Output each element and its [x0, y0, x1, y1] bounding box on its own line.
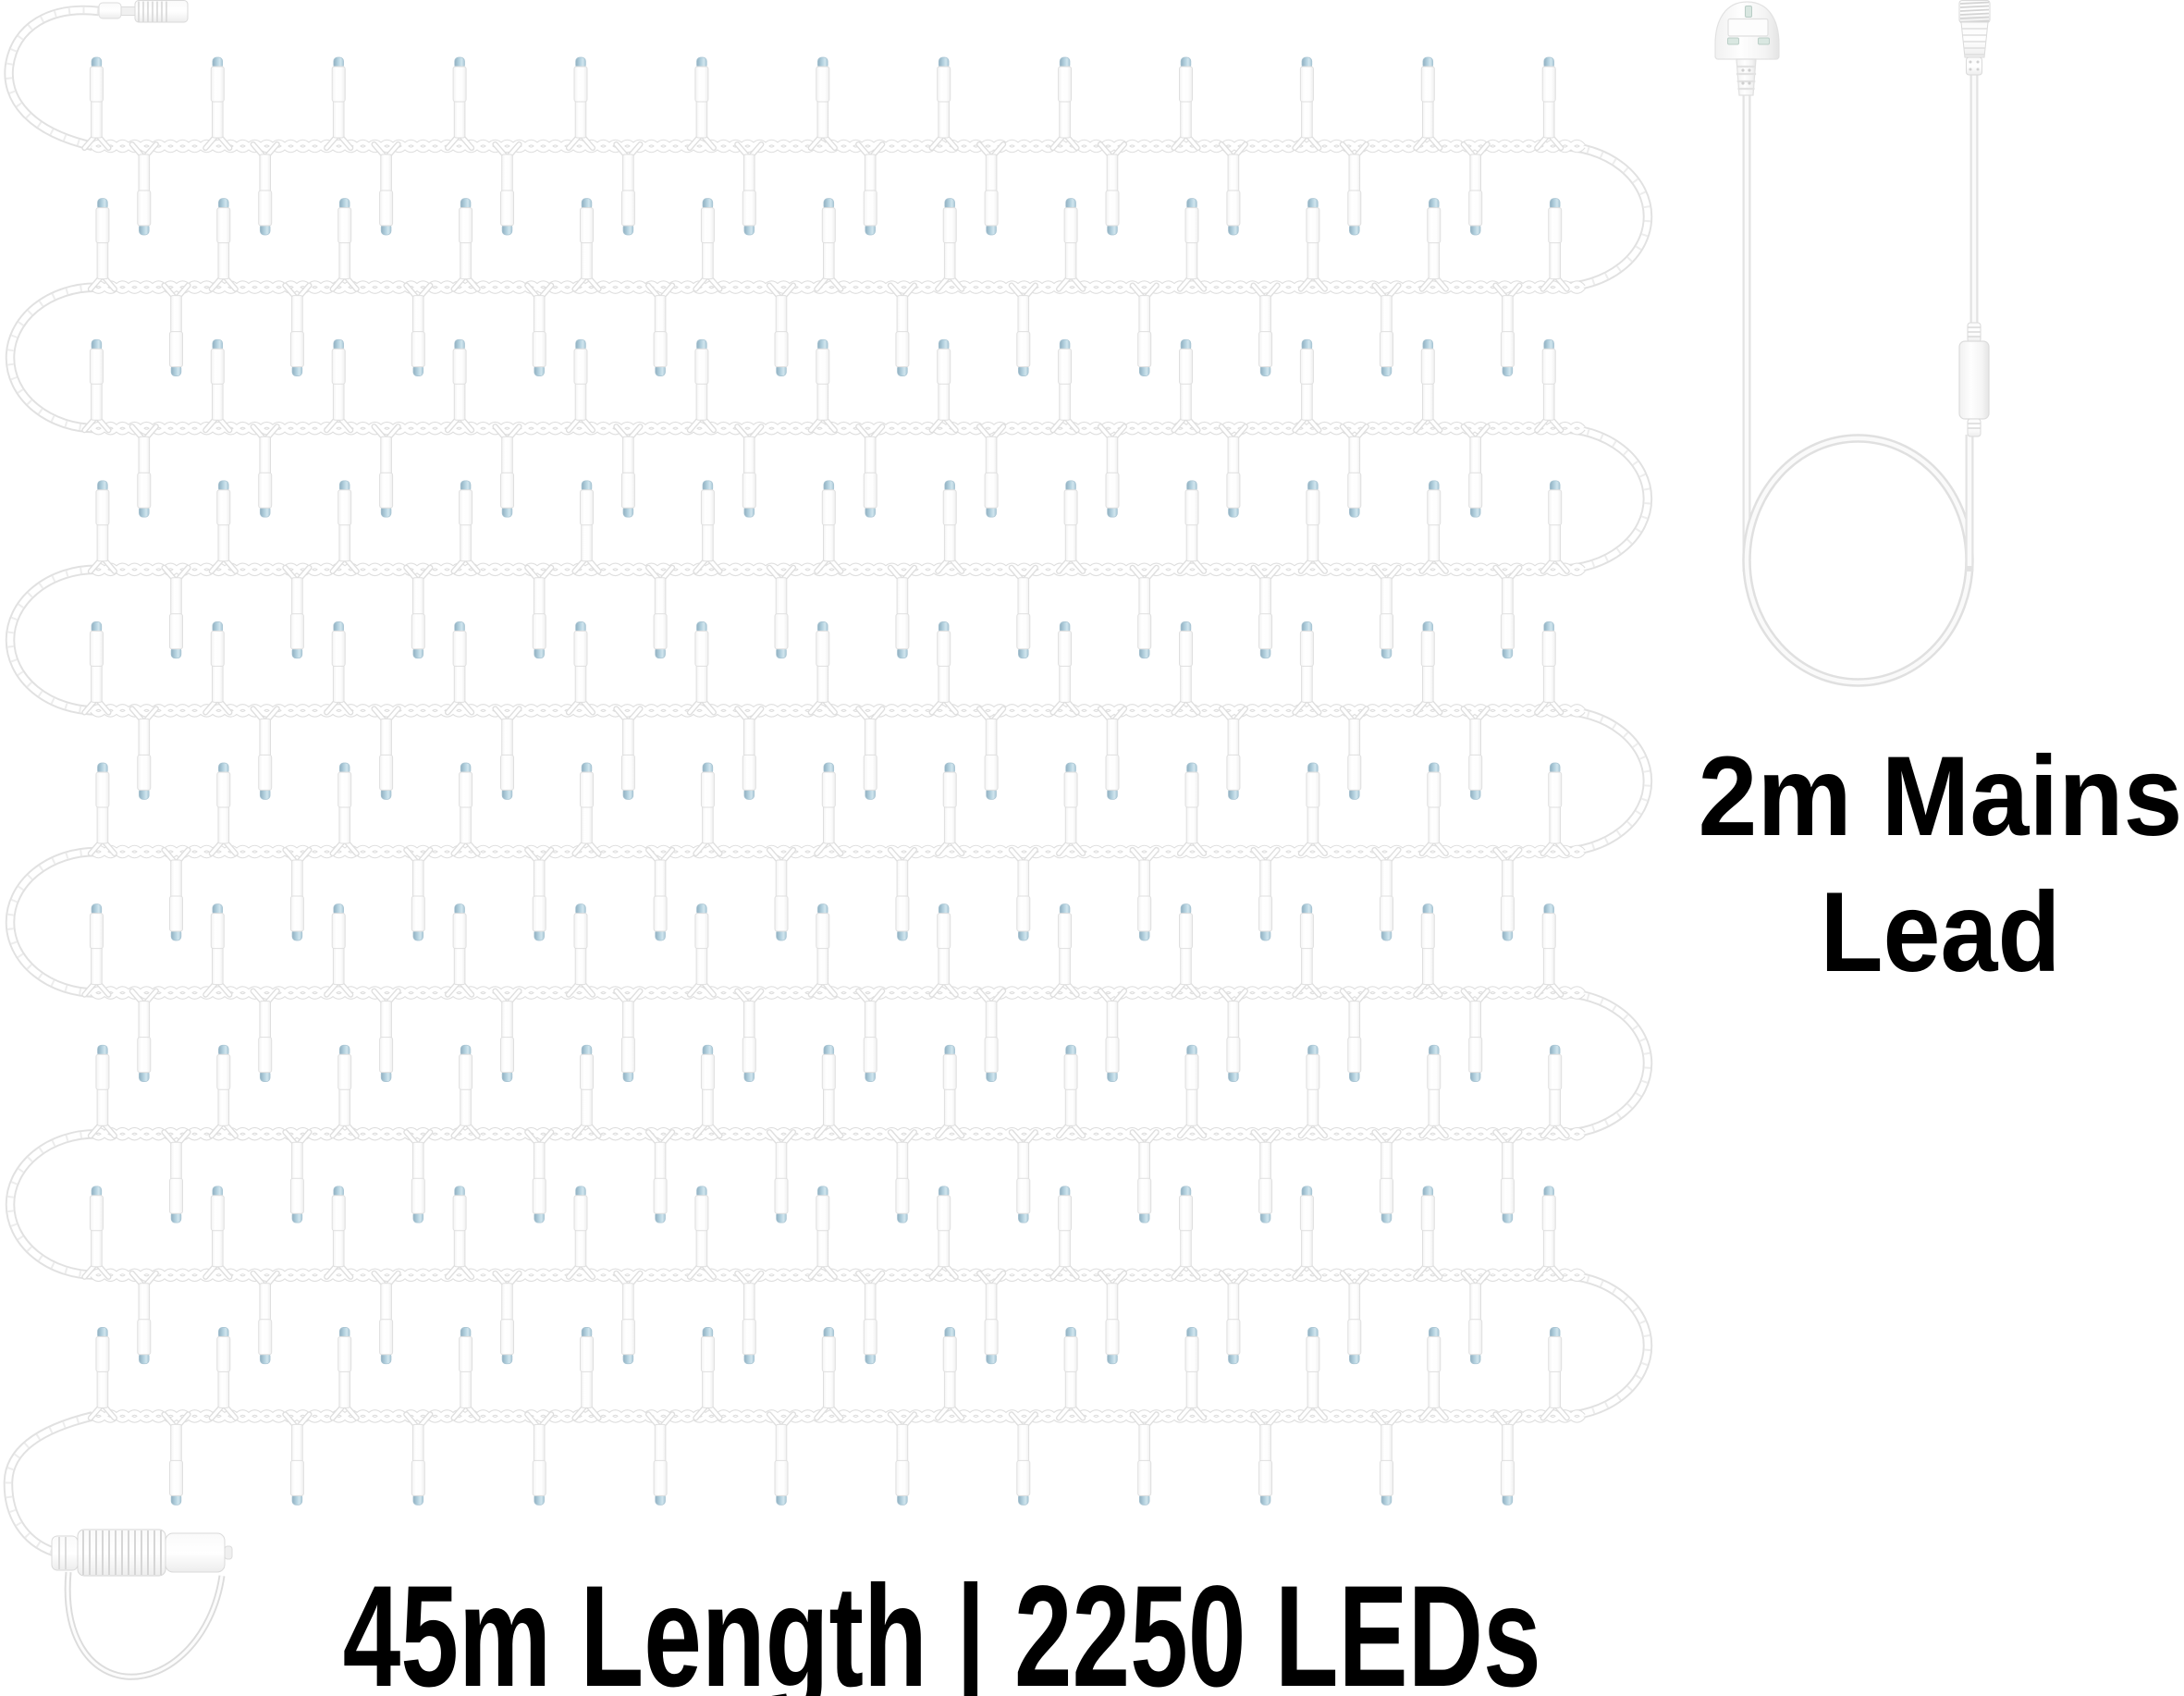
svg-text:45m Length | 2250 LEDs: 45m Length | 2250 LEDs — [343, 1556, 1541, 1696]
svg-text:2m Mains: 2m Mains — [1699, 732, 2183, 859]
svg-text:Lead: Lead — [1821, 868, 2061, 995]
